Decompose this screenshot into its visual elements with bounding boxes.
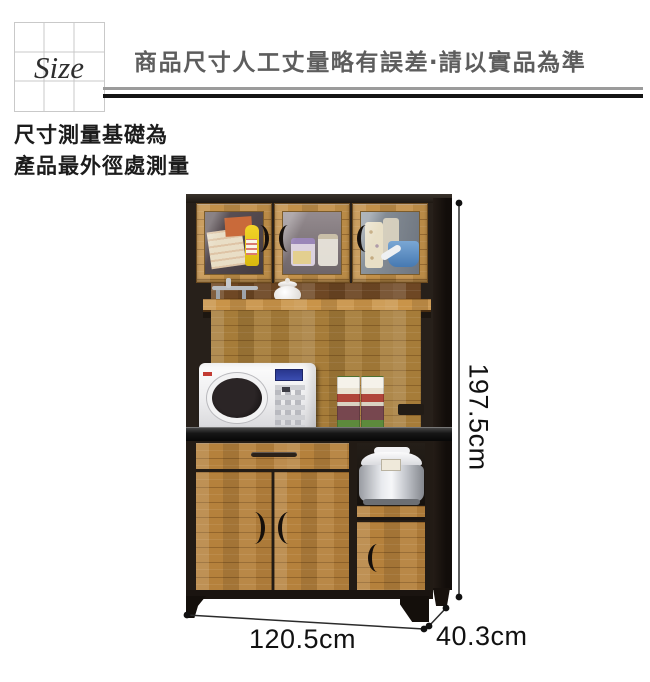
glass-sheen bbox=[205, 212, 263, 274]
measurement-note-line2: 產品最外徑處測量 bbox=[14, 151, 190, 182]
juice-box bbox=[361, 376, 384, 431]
depth-dimension-label: 40.3cm bbox=[436, 621, 528, 652]
door-handle bbox=[279, 225, 292, 252]
cabinet-leg-left bbox=[186, 596, 206, 618]
microwave-door bbox=[207, 373, 267, 423]
microwave-window bbox=[212, 378, 262, 418]
cabinet-leg-right bbox=[400, 596, 429, 622]
microwave-button bbox=[282, 387, 290, 392]
base-rail bbox=[186, 590, 433, 599]
cabinet-leg-back bbox=[433, 588, 450, 606]
height-dimension-label: 197.5cm bbox=[463, 364, 494, 460]
measurement-note-line1: 尺寸測量基礎為 bbox=[14, 120, 190, 151]
rice-cooker-base bbox=[363, 499, 420, 505]
faucet-item bbox=[226, 278, 231, 288]
microwave-logo bbox=[203, 372, 212, 376]
outlet-panel bbox=[398, 404, 424, 415]
microwave bbox=[199, 363, 316, 432]
door-handle bbox=[368, 544, 381, 572]
glass-pane bbox=[204, 211, 264, 275]
dimension-dot bbox=[456, 594, 463, 601]
product-size-page: Size 商品尺寸人工丈量略有誤差‧請以實品為準 尺寸測量基礎為 產品最外徑處測… bbox=[0, 0, 650, 682]
dimension-dot bbox=[421, 626, 428, 633]
cabinet-illustration bbox=[186, 194, 452, 626]
microwave-buttons bbox=[275, 385, 305, 427]
rice-cooker-label bbox=[381, 459, 401, 471]
rice-cooker bbox=[359, 447, 424, 506]
cubby-rail bbox=[357, 506, 425, 520]
cabinet-side-panel bbox=[433, 198, 452, 590]
width-dimension-label: 120.5cm bbox=[245, 624, 360, 655]
drawer bbox=[196, 443, 349, 469]
juice-box bbox=[337, 376, 360, 431]
countertop bbox=[186, 427, 452, 441]
dimension-dot bbox=[456, 200, 463, 207]
divider-gray bbox=[103, 87, 643, 90]
divider-black bbox=[103, 94, 643, 98]
microwave-display bbox=[275, 369, 303, 381]
size-label: Size bbox=[16, 50, 102, 86]
measurement-note: 尺寸測量基礎為 產品最外徑處測量 bbox=[14, 120, 190, 182]
cabinet-top-board bbox=[186, 194, 452, 203]
door-handle bbox=[357, 225, 370, 252]
sugar-pot-item bbox=[285, 278, 290, 283]
drawer-handle bbox=[251, 452, 297, 457]
size-disclaimer-text: 商品尺寸人工丈量略有誤差‧請以實品為準 bbox=[134, 43, 644, 77]
